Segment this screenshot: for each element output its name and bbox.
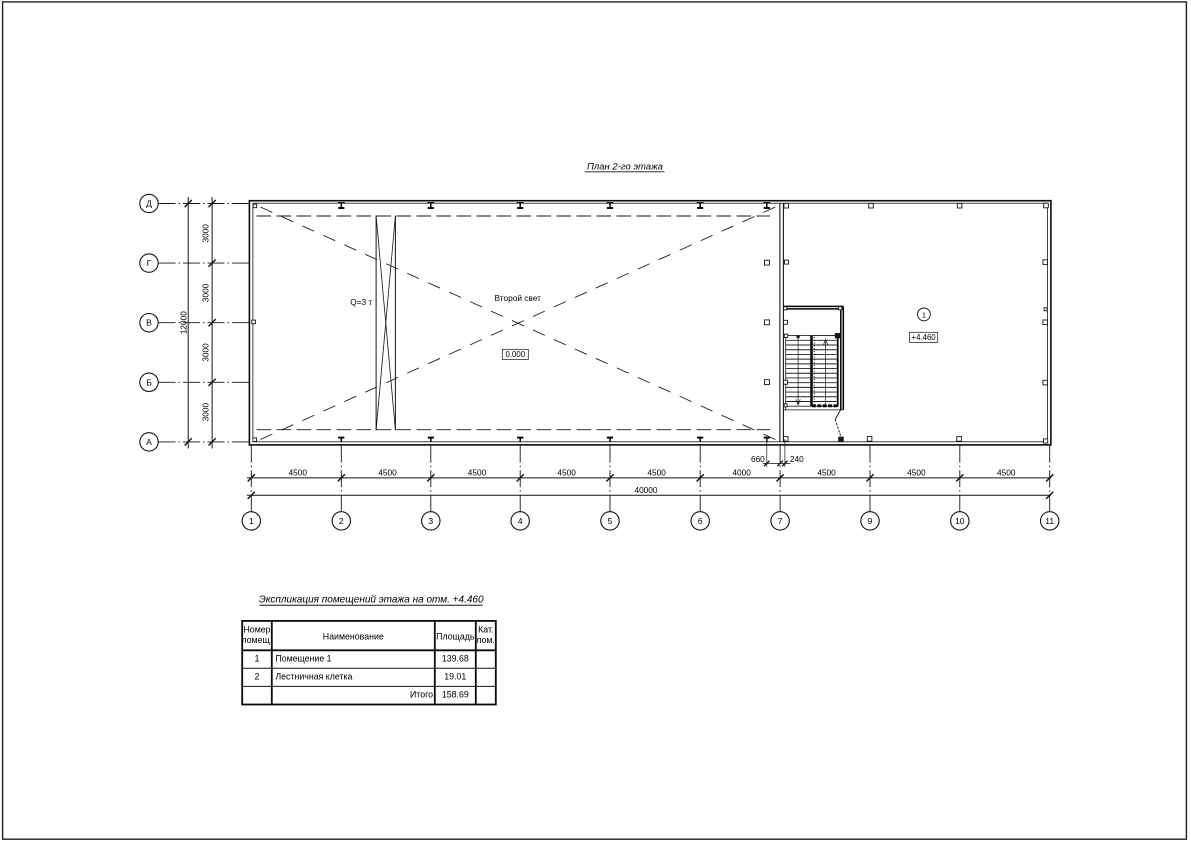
- svg-text:4500: 4500: [907, 468, 926, 478]
- svg-text:660: 660: [751, 454, 765, 464]
- svg-text:4: 4: [518, 516, 523, 526]
- svg-text:А: А: [146, 437, 152, 447]
- svg-text:1: 1: [249, 516, 254, 526]
- svg-text:3000: 3000: [201, 224, 211, 243]
- svg-text:4500: 4500: [647, 468, 666, 478]
- svg-text:40000: 40000: [634, 485, 657, 495]
- svg-text:240: 240: [790, 454, 804, 464]
- svg-text:Г: Г: [147, 258, 152, 268]
- svg-text:Второй свет: Второй свет: [495, 293, 542, 303]
- svg-text:6: 6: [698, 516, 703, 526]
- svg-text:10: 10: [955, 516, 965, 526]
- svg-text:7: 7: [778, 516, 783, 526]
- svg-text:3: 3: [428, 516, 433, 526]
- svg-text:1: 1: [255, 654, 260, 664]
- svg-text:139.68: 139.68: [442, 654, 469, 664]
- svg-text:3000: 3000: [201, 283, 211, 302]
- svg-text:19.01: 19.01: [444, 672, 466, 682]
- svg-text:9: 9: [868, 516, 873, 526]
- svg-text:Лестничная клетка: Лестничная клетка: [275, 672, 352, 682]
- svg-text:+4.460: +4.460: [912, 333, 937, 342]
- svg-text:158.69: 158.69: [442, 690, 469, 700]
- svg-text:Экспликация помещений этажа на: Экспликация помещений этажа на отм. +4.4…: [259, 595, 484, 606]
- svg-text:Итого: Итого: [410, 690, 433, 700]
- svg-text:2: 2: [255, 672, 260, 682]
- svg-text:3000: 3000: [201, 402, 211, 421]
- svg-text:В: В: [146, 318, 152, 328]
- svg-text:4500: 4500: [378, 468, 397, 478]
- svg-text:12000: 12000: [179, 311, 189, 334]
- svg-text:4500: 4500: [557, 468, 576, 478]
- svg-text:пом.: пом.: [477, 635, 495, 645]
- svg-text:4500: 4500: [817, 468, 836, 478]
- svg-text:Номер: Номер: [243, 625, 270, 635]
- svg-text:Площадь: Площадь: [436, 632, 475, 642]
- svg-text:5: 5: [608, 516, 613, 526]
- svg-text:Б: Б: [146, 377, 152, 387]
- svg-text:4500: 4500: [997, 468, 1016, 478]
- svg-text:4500: 4500: [468, 468, 487, 478]
- svg-text:4500: 4500: [289, 468, 308, 478]
- svg-text:Наименование: Наименование: [323, 632, 384, 642]
- svg-text:11: 11: [1045, 516, 1054, 526]
- svg-text:2: 2: [339, 516, 344, 526]
- svg-text:Кат.: Кат.: [478, 625, 493, 635]
- svg-text:Q=3 т: Q=3 т: [350, 297, 372, 307]
- svg-text:План 2-го этажа: План 2-го этажа: [587, 162, 663, 173]
- svg-text:помещ.: помещ.: [242, 635, 272, 645]
- svg-text:3000: 3000: [201, 343, 211, 362]
- svg-text:1: 1: [922, 310, 926, 319]
- svg-text:Д: Д: [146, 199, 152, 209]
- svg-text:0.000: 0.000: [506, 350, 526, 359]
- svg-text:Помещение 1: Помещение 1: [275, 654, 331, 664]
- svg-text:4000: 4000: [732, 468, 751, 478]
